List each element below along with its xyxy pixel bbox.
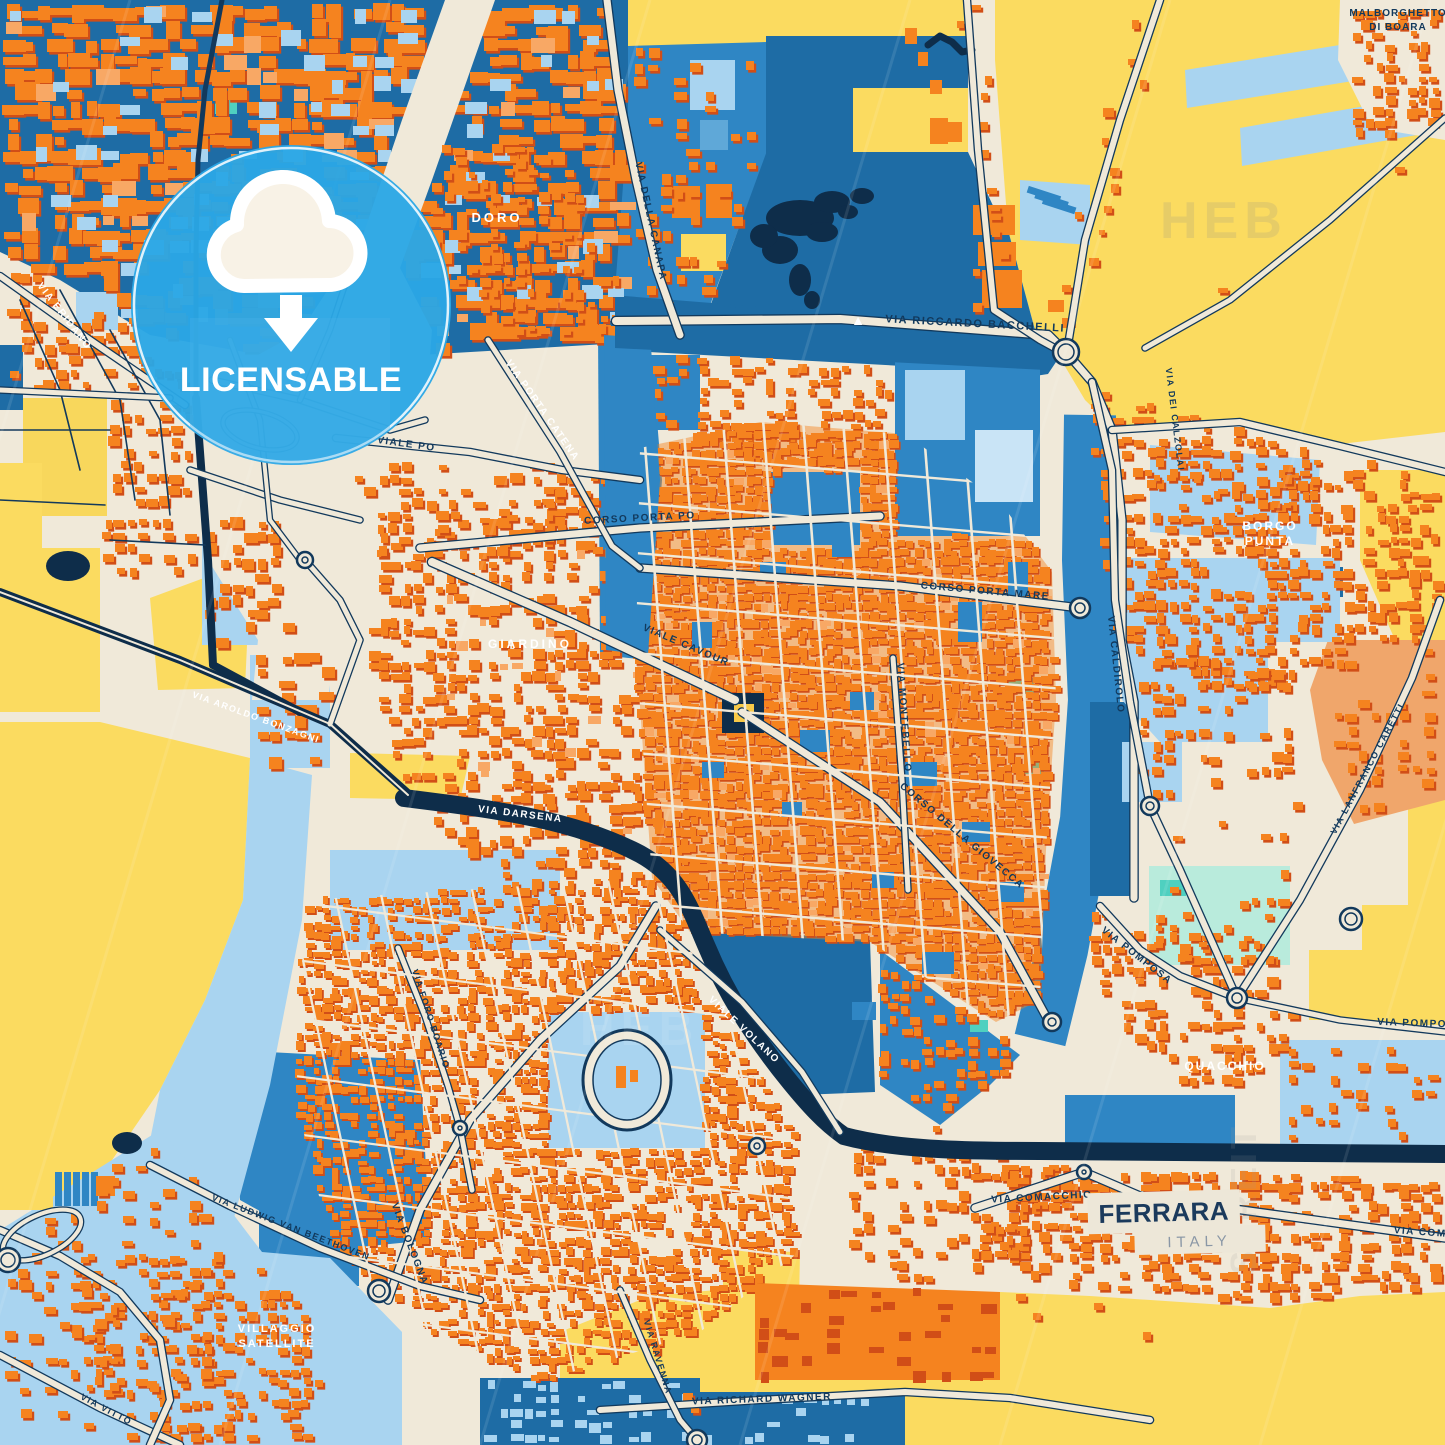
svg-text:LICENSABLE: LICENSABLE xyxy=(180,361,402,399)
svg-text:GIARDINO: GIARDINO xyxy=(488,637,572,651)
svg-text:FERRARA: FERRARA xyxy=(1098,1196,1229,1229)
svg-text:BORGO: BORGO xyxy=(1242,519,1297,533)
svg-text:PUNTA: PUNTA xyxy=(1245,534,1295,548)
svg-text:HEB: HEB xyxy=(580,1003,699,1056)
svg-text:VILLAGGIO: VILLAGGIO xyxy=(238,1323,317,1335)
svg-text:▲: ▲ xyxy=(851,312,865,328)
svg-text:HEB: HEB xyxy=(1160,192,1288,250)
svg-text:QUACCHIO: QUACCHIO xyxy=(1184,1059,1265,1073)
svg-text:MALBORGHETTO: MALBORGHETTO xyxy=(1349,8,1445,19)
svg-text:SATELLITE: SATELLITE xyxy=(238,1338,315,1350)
svg-text:DORO: DORO xyxy=(472,210,523,225)
svg-text:ITALY: ITALY xyxy=(1167,1233,1232,1252)
svg-text:DI BOARA: DI BOARA xyxy=(1369,22,1426,33)
